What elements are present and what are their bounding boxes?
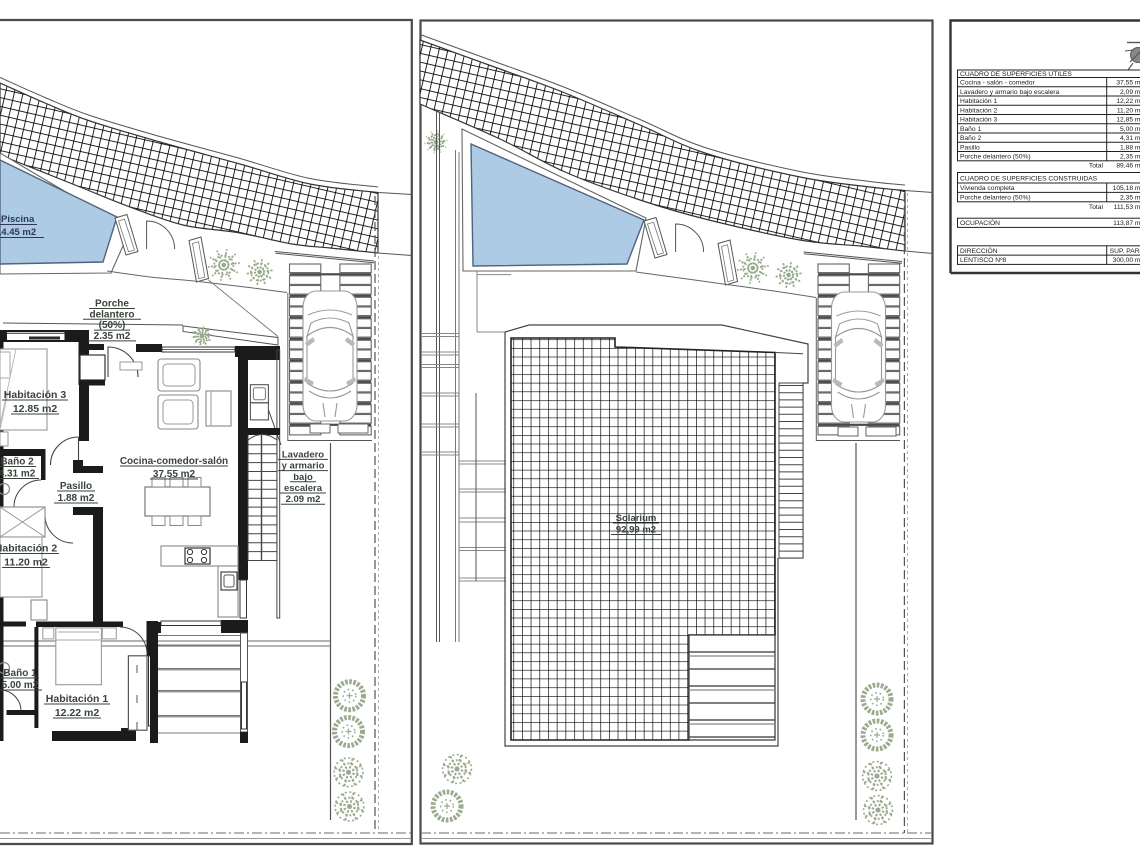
svg-text:111,53 m: 111,53 m	[1114, 204, 1140, 211]
svg-text:5.00 m2: 5.00 m2	[2, 680, 39, 691]
svg-text:14.45 m2: 14.45 m2	[0, 227, 36, 238]
svg-text:2,35 m: 2,35 m	[1120, 154, 1140, 161]
svg-text:Pasillo: Pasillo	[60, 481, 92, 492]
svg-text:300,00 m: 300,00 m	[1113, 257, 1140, 264]
svg-text:2.09 m2: 2.09 m2	[286, 494, 321, 505]
svg-text:Habitación 1: Habitación 1	[960, 98, 997, 105]
svg-text:1,88 m: 1,88 m	[1120, 144, 1140, 151]
svg-text:4,31 m: 4,31 m	[1120, 135, 1140, 142]
svg-text:Baño 2: Baño 2	[0, 457, 34, 468]
svg-text:37,55 m: 37,55 m	[1116, 80, 1140, 87]
svg-text:OCUPACIÓN: OCUPACIÓN	[960, 218, 1000, 227]
svg-text:y armario: y armario	[282, 461, 325, 472]
svg-text:Piscina: Piscina	[1, 214, 35, 225]
svg-text:Total: Total	[1089, 163, 1104, 170]
svg-text:12.22 m2: 12.22 m2	[55, 707, 100, 719]
svg-text:11,20 m: 11,20 m	[1117, 107, 1140, 114]
svg-text:Habitación 2: Habitación 2	[960, 107, 997, 114]
svg-text:Baño 2: Baño 2	[960, 135, 981, 142]
svg-text:12.85 m2: 12.85 m2	[13, 403, 58, 415]
svg-text:Pasillo: Pasillo	[960, 144, 980, 151]
svg-text:12,85 m: 12,85 m	[1116, 117, 1140, 124]
svg-text:Habitación 3: Habitación 3	[4, 389, 67, 401]
svg-text:2.35 m2: 2.35 m2	[94, 331, 131, 342]
svg-text:Porche delantero (50%): Porche delantero (50%)	[960, 195, 1031, 202]
svg-text:11.20 m2: 11.20 m2	[4, 557, 48, 569]
svg-text:Lavadero y armario bajo escale: Lavadero y armario bajo escalera	[960, 89, 1060, 96]
svg-text:Habitación 1: Habitación 1	[46, 693, 109, 705]
svg-text:Solarium: Solarium	[616, 513, 657, 524]
svg-text:Lavadero: Lavadero	[282, 449, 324, 460]
svg-text:113,87 m: 113,87 m	[1113, 220, 1140, 227]
svg-text:Cocina-comedor-salón: Cocina-comedor-salón	[120, 456, 228, 467]
svg-text:37.55 m2: 37.55 m2	[153, 469, 196, 480]
svg-text:12,22 m: 12,22 m	[1116, 98, 1140, 105]
svg-text:Total: Total	[1089, 204, 1104, 211]
svg-text:89,46 m: 89,46 m	[1116, 163, 1140, 170]
svg-text:CUADRO DE SUPERFICIES CONSTRUI: CUADRO DE SUPERFICIES CONSTRUIDAS	[960, 176, 1098, 183]
svg-text:LENTISCO Nº8: LENTISCO Nº8	[960, 257, 1007, 264]
svg-text:CUADRO DE SUPERFICIES UTILES: CUADRO DE SUPERFICIES UTILES	[960, 71, 1072, 78]
svg-text:Baño 1: Baño 1	[960, 126, 981, 133]
svg-text:Cocina - salón - comedor: Cocina - salón - comedor	[960, 80, 1035, 87]
svg-text:92,99 m2: 92,99 m2	[616, 525, 656, 536]
svg-text:Baño 1: Baño 1	[3, 668, 37, 679]
svg-text:5,00 m: 5,00 m	[1120, 126, 1140, 133]
svg-text:delantero: delantero	[89, 309, 134, 320]
svg-text:105,18 m: 105,18 m	[1113, 185, 1140, 192]
svg-text:4.31 m2: 4.31 m2	[0, 469, 36, 480]
svg-text:SUP. PARCELA: SUP. PARCELA	[1110, 248, 1140, 255]
svg-text:2,09 m: 2,09 m	[1120, 89, 1140, 96]
svg-text:Habitación 2: Habitación 2	[0, 543, 57, 555]
svg-text:DIRECCIÓN: DIRECCIÓN	[960, 246, 998, 255]
svg-text:Vivienda completa: Vivienda completa	[960, 185, 1015, 192]
svg-text:Porche: Porche	[95, 299, 129, 310]
svg-text:2,35 m: 2,35 m	[1120, 195, 1140, 202]
svg-text:bajo: bajo	[293, 472, 313, 483]
svg-text:Porche delantero (50%): Porche delantero (50%)	[960, 154, 1031, 161]
svg-text:Habitación 3: Habitación 3	[960, 117, 997, 124]
svg-text:1.88 m2: 1.88 m2	[58, 493, 95, 504]
svg-text:(50%): (50%)	[99, 320, 126, 331]
svg-text:escalera: escalera	[284, 483, 323, 494]
